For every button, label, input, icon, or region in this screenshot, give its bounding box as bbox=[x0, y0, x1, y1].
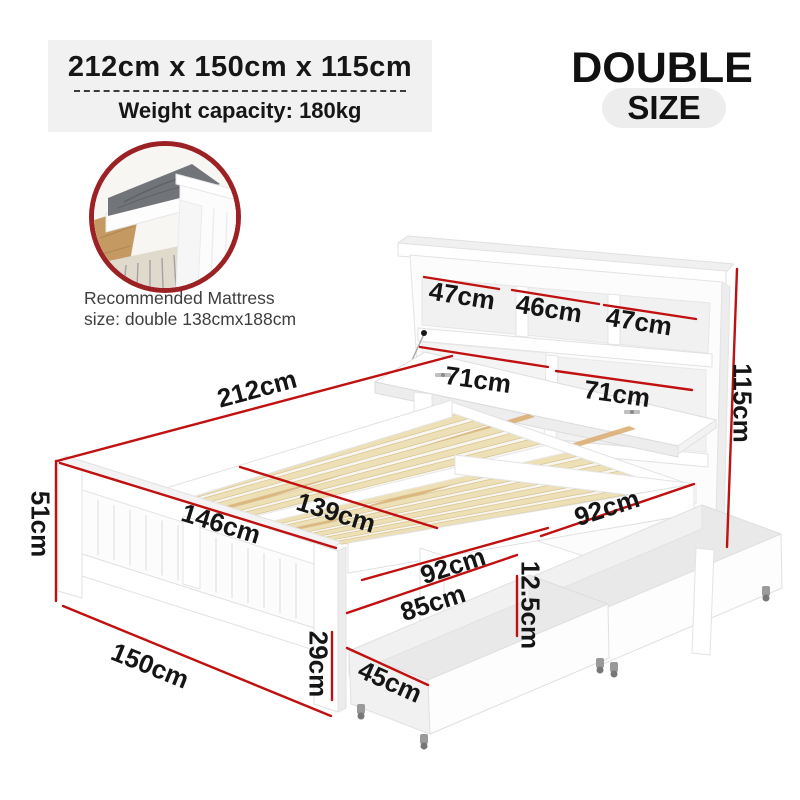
storage-drawer-front bbox=[349, 575, 609, 750]
headboard-right-leg bbox=[692, 548, 714, 655]
dim-label-leg-height: 29cm bbox=[303, 631, 334, 698]
dim-label-footboard-height: 51cm bbox=[25, 491, 56, 558]
desk-cable-anchor bbox=[421, 330, 427, 336]
dim-label-rail-gap: 12.5cm bbox=[515, 561, 546, 649]
dim-label-total-height: 115cm bbox=[727, 363, 758, 443]
product-dimension-diagram: 212cm x 150cm x 115cm Weight capacity: 1… bbox=[0, 0, 800, 800]
